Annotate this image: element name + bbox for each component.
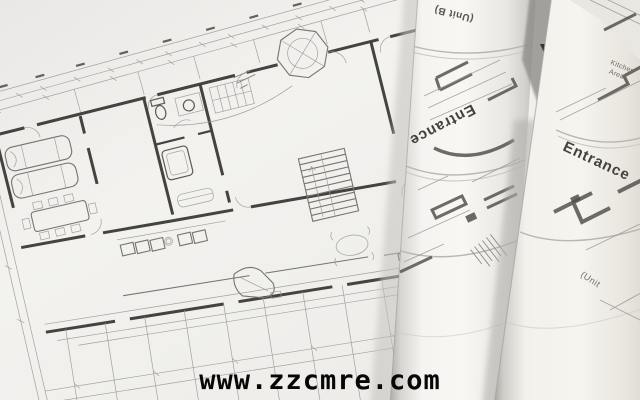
watermark-text: www.zzcmre.com [199,365,441,396]
blueprint-photo: (Unit B) Entrance H [0,0,640,400]
photo-scene: (Unit B) Entrance H [0,0,640,400]
